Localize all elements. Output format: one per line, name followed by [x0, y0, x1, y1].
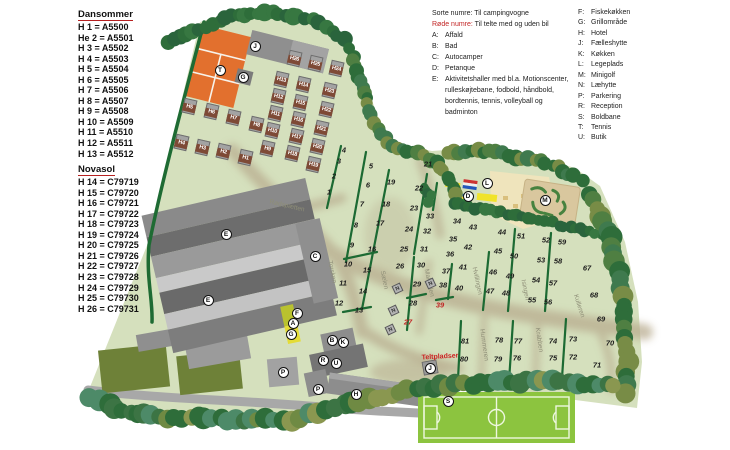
- marker-j: J: [250, 41, 261, 52]
- pitch-number-19: 19: [387, 178, 395, 187]
- shelter-hut-marker: N: [391, 282, 403, 294]
- street-name: Hummeren: [478, 329, 489, 362]
- pitch-number-25: 25: [400, 245, 408, 254]
- pitch-number-8: 8: [354, 221, 358, 230]
- pitch-number-47: 47: [486, 287, 494, 296]
- pitch-number-57: 57: [549, 279, 557, 288]
- shelter-hut-marker: N: [384, 323, 396, 335]
- cabin-h13: H13: [273, 70, 289, 88]
- street-name: Torsken: [326, 260, 338, 284]
- marker-a: A: [288, 318, 299, 329]
- pitch-number-9: 9: [350, 241, 354, 250]
- map-labels-overlay: H1H2H3H4H5H6H7H8H9H10H11H12H13H14H15H16H…: [0, 0, 730, 450]
- marker-l: L: [482, 178, 493, 189]
- marker-p: P: [278, 367, 289, 378]
- cabin-h24: H24: [328, 59, 344, 77]
- pitch-number-81: 81: [461, 337, 469, 346]
- street-name: Hvillingen: [471, 266, 484, 295]
- cabin-h23: H23: [321, 81, 337, 99]
- pitch-number-6: 6: [366, 181, 370, 190]
- pitch-number-2: 2: [332, 172, 336, 181]
- pitch-number-74: 74: [549, 337, 557, 346]
- pitch-number-38: 38: [439, 281, 447, 290]
- pitch-number-13: 13: [355, 306, 363, 315]
- pitch-number-70: 70: [606, 339, 614, 348]
- pitch-number-39: 39: [436, 301, 444, 310]
- tent-area-label: Teltpladser: [421, 353, 458, 362]
- pitch-number-36: 36: [446, 250, 454, 259]
- pitch-number-80: 80: [460, 355, 468, 364]
- pitch-number-76: 76: [513, 354, 521, 363]
- pitch-number-49: 49: [506, 272, 514, 281]
- street-name: Krabben: [534, 327, 544, 352]
- pitch-number-21: 21: [424, 160, 432, 169]
- cabin-h1: H1: [237, 148, 253, 166]
- pitch-number-28: 28: [409, 299, 417, 308]
- pitch-number-24: 24: [405, 225, 413, 234]
- pitch-number-73: 73: [569, 335, 577, 344]
- cabin-h3: H3: [194, 138, 210, 156]
- pitch-number-12: 12: [335, 299, 343, 308]
- marker-m: M: [540, 195, 551, 206]
- pitch-number-45: 45: [494, 247, 502, 256]
- pitch-number-15: 15: [363, 266, 371, 275]
- pitch-number-7: 7: [360, 200, 364, 209]
- pitch-number-41: 41: [459, 263, 467, 272]
- cabin-h22: H22: [318, 100, 334, 118]
- cabin-h12: H12: [270, 87, 286, 105]
- pitch-number-43: 43: [469, 223, 477, 232]
- cabin-h17: H17: [288, 127, 304, 145]
- campground-map-screenshot: Dansommer H 1 = A5500He 2 = A5501H 3 = A…: [0, 0, 730, 450]
- marker-p: P: [313, 384, 324, 395]
- pitch-number-1: 1: [327, 188, 331, 197]
- cabin-h2: H2: [215, 142, 231, 160]
- cabin-h19: H19: [305, 155, 321, 173]
- pitch-number-72: 72: [569, 353, 577, 362]
- pitch-number-32: 32: [423, 227, 431, 236]
- pitch-number-77: 77: [514, 337, 522, 346]
- cabin-h11: H11: [267, 104, 283, 122]
- cabin-h8: H8: [248, 115, 264, 133]
- pitch-number-18: 18: [382, 200, 390, 209]
- pitch-number-68: 68: [590, 291, 598, 300]
- pitch-number-16: 16: [368, 245, 376, 254]
- pitch-number-78: 78: [495, 336, 503, 345]
- pitch-number-14: 14: [359, 287, 367, 296]
- marker-e: E: [203, 295, 214, 306]
- pitch-number-29: 29: [413, 280, 421, 289]
- marker-b: B: [327, 335, 338, 346]
- marker-e: E: [221, 229, 232, 240]
- cabin-h7: H7: [225, 108, 241, 126]
- pitch-number-51: 51: [517, 232, 525, 241]
- marker-g: G: [238, 72, 249, 83]
- cabin-h14: H14: [295, 75, 311, 93]
- marker-h: H: [351, 389, 362, 400]
- pitch-number-50: 50: [510, 252, 518, 261]
- pitch-number-54: 54: [532, 276, 540, 285]
- pitch-number-3: 3: [337, 157, 341, 166]
- pitch-number-40: 40: [455, 284, 463, 293]
- pitch-number-35: 35: [449, 235, 457, 244]
- shelter-hut-marker: N: [387, 304, 399, 316]
- cabin-h25: H25: [307, 54, 323, 72]
- pitch-number-58: 58: [554, 257, 562, 266]
- pitch-number-42: 42: [464, 243, 472, 252]
- cabin-h16: H16: [290, 110, 306, 128]
- pitch-number-31: 31: [420, 245, 428, 254]
- cabin-h4: H4: [173, 133, 189, 151]
- cabin-h18: H18: [284, 144, 300, 162]
- cabin-h15: H15: [292, 93, 308, 111]
- marker-j: J: [425, 363, 436, 374]
- cabin-h20: H20: [309, 137, 325, 155]
- pitch-number-30: 30: [417, 261, 425, 270]
- pitch-number-59: 59: [558, 238, 566, 247]
- pitch-number-67: 67: [583, 264, 591, 273]
- cabin-h9: H9: [259, 139, 275, 157]
- pitch-number-27: 27: [404, 318, 412, 327]
- pitch-number-79: 79: [494, 355, 502, 364]
- marker-t: T: [215, 65, 226, 76]
- cabin-h5: H5: [181, 97, 197, 115]
- pitch-number-26: 26: [396, 262, 404, 271]
- pitch-number-10: 10: [344, 260, 352, 269]
- pitch-number-53: 53: [537, 256, 545, 265]
- marker-c: C: [310, 251, 321, 262]
- street-name: Kulleren: [572, 294, 586, 319]
- pitch-number-4: 4: [342, 146, 346, 155]
- pitch-number-69: 69: [597, 315, 605, 324]
- cabin-h6: H6: [203, 102, 219, 120]
- pitch-number-23: 23: [410, 204, 418, 213]
- street-name: Sælen: [379, 270, 390, 290]
- pitch-number-33: 33: [426, 212, 434, 221]
- marker-k: K: [338, 337, 349, 348]
- pitch-number-71: 71: [593, 361, 601, 370]
- marker-d: D: [463, 191, 474, 202]
- cabin-h21: H21: [313, 119, 329, 137]
- pitch-number-52: 52: [542, 236, 550, 245]
- cabin-h10: H10: [264, 121, 280, 139]
- pitch-number-48: 48: [502, 289, 510, 298]
- pitch-number-5: 5: [369, 162, 373, 171]
- pitch-number-37: 37: [442, 267, 450, 276]
- pitch-number-11: 11: [339, 279, 347, 288]
- street-name: Rødspætten: [269, 199, 305, 214]
- marker-r: R: [318, 355, 329, 366]
- marker-f: F: [292, 308, 303, 319]
- marker-u: U: [331, 358, 342, 369]
- marker-g: G: [286, 329, 297, 340]
- marker-s: S: [443, 396, 454, 407]
- pitch-number-34: 34: [453, 217, 461, 226]
- pitch-number-55: 55: [528, 296, 536, 305]
- pitch-number-46: 46: [489, 268, 497, 277]
- pitch-number-56: 56: [544, 298, 552, 307]
- cabin-h26: H26: [286, 49, 302, 67]
- pitch-number-17: 17: [376, 219, 384, 228]
- pitch-number-75: 75: [549, 354, 557, 363]
- pitch-number-22: 22: [415, 184, 423, 193]
- pitch-number-44: 44: [498, 228, 506, 237]
